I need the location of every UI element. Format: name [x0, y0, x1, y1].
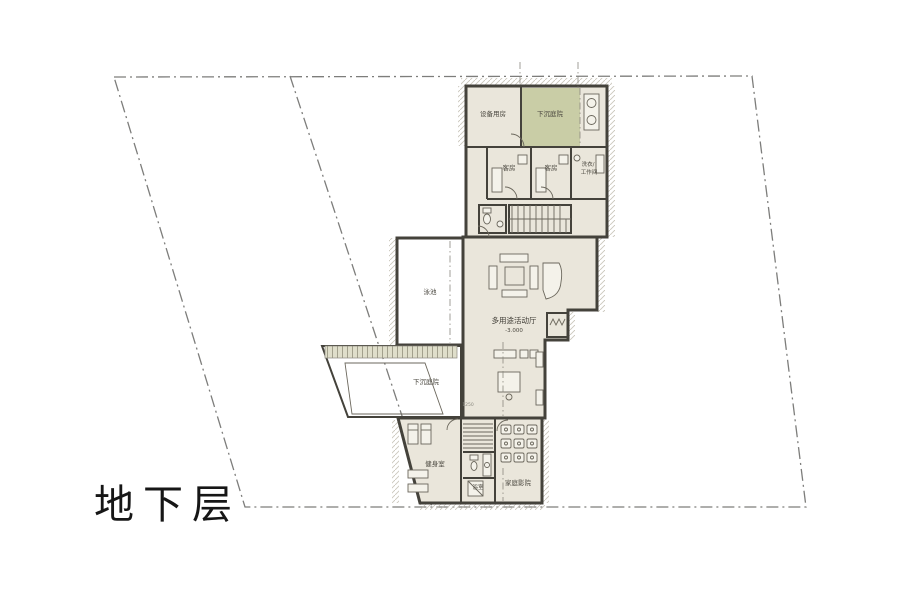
hall-label: 多用途活动厅	[492, 315, 537, 325]
toilet-icon	[484, 214, 491, 224]
floor-plan-page: 设备用房 下沉庭院 客房 客房 洗衣/ 工作间	[0, 0, 900, 600]
bottom-block: 健身室 浴室 家庭影院	[398, 418, 542, 503]
guest-room-2-label: 客房	[545, 163, 558, 172]
pool-label: 泳池	[424, 287, 438, 296]
courtyard-steps-icon	[325, 346, 457, 358]
upper-block: 设备用房 下沉庭院 客房 客房 洗衣/ 工作间	[466, 62, 607, 237]
closet-icon	[518, 155, 527, 164]
middle-block: 泳池 多用途活动厅 -3.000 1250	[397, 226, 597, 418]
dimension-label: 1250	[462, 402, 474, 408]
left-courtyard	[322, 346, 461, 417]
sunken-courtyard-top-label: 下沉庭院	[537, 109, 564, 118]
hatch-strip	[392, 420, 399, 503]
sunken-courtyard-left-label: 下沉庭院	[413, 377, 440, 386]
toilet-icon	[470, 455, 478, 460]
hall-level-label: -3.000	[505, 328, 523, 334]
equipment-room-label: 设备用房	[480, 109, 506, 118]
washer-icon	[584, 94, 599, 130]
bed-icon	[492, 168, 502, 192]
theater-seats-icon	[501, 425, 537, 462]
hall-outline	[463, 237, 597, 418]
home-theater-label: 家庭影院	[505, 478, 532, 487]
gym-label: 健身室	[425, 459, 445, 468]
toilet-icon	[471, 462, 477, 471]
laundry-label-line2: 工作间	[581, 168, 598, 176]
toilet-icon	[483, 208, 491, 213]
guest-room-1-label: 客房	[503, 163, 516, 172]
laundry-label-line1: 洗衣/	[582, 160, 595, 168]
sink-icon	[497, 221, 503, 227]
sink-icon	[574, 155, 580, 161]
closet-icon	[559, 155, 568, 164]
plan-title: 地下层	[94, 472, 241, 530]
stairs-down-icon	[463, 424, 493, 448]
courtyard-terrace-line	[345, 363, 443, 414]
bath-label: 浴室	[472, 483, 484, 491]
